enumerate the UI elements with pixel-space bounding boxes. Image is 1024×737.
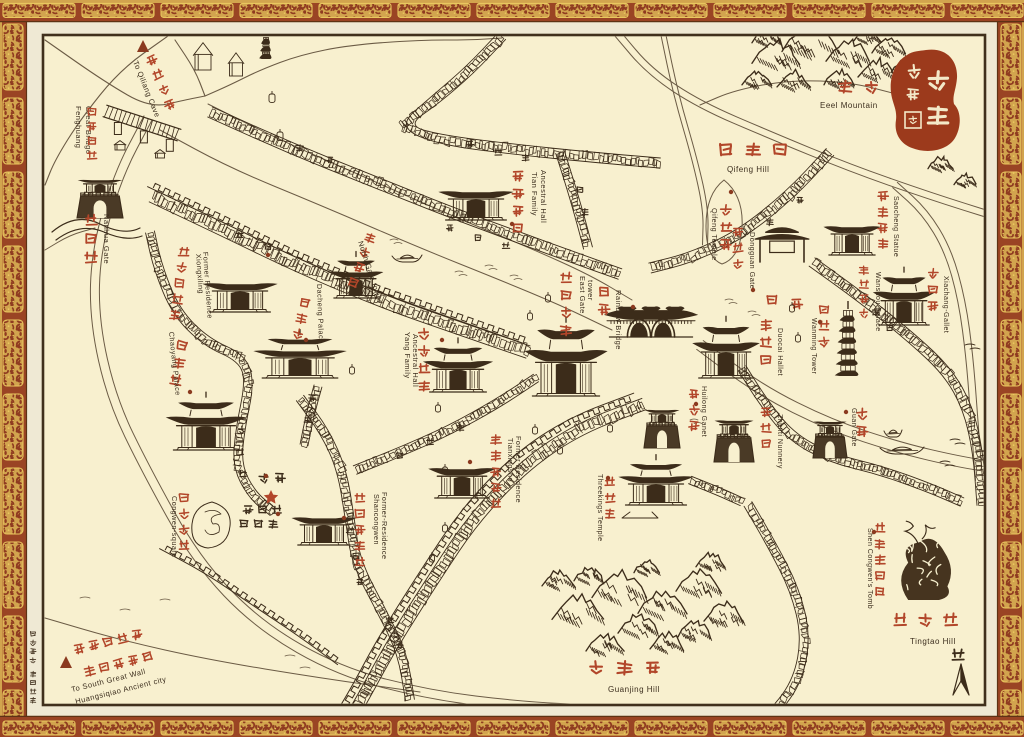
svg-text:Eeel Mountain: Eeel Mountain: [820, 101, 878, 110]
svg-text:Ancestral Hall: Ancestral Hall: [411, 334, 420, 387]
svg-text:Nanhua Gate: Nanhua Gate: [102, 214, 111, 264]
svg-text:Rainbow Bridge: Rainbow Bridge: [614, 290, 623, 350]
svg-text:Wanming Tower: Wanming Tower: [810, 318, 817, 374]
svg-text:Qifeng Hill: Qifeng Hill: [727, 165, 769, 174]
svg-text:Dongguan Gate: Dongguan Gate: [748, 232, 757, 289]
svg-text:Former Residence: Former Residence: [514, 436, 523, 503]
svg-text:Ancestral Hall: Ancestral Hall: [539, 170, 548, 223]
svg-text:Duocai Hallet: Duocai Hallet: [776, 328, 783, 376]
svg-text:Wanshou Palace: Wanshou Palace: [874, 272, 881, 332]
svg-text:Tingtao Hill: Tingtao Hill: [910, 637, 956, 646]
svg-text:Yang Family: Yang Family: [403, 332, 412, 379]
svg-text:Guan Gate: Guan Gate: [850, 408, 857, 447]
svg-text:Fenghuang: Fenghuang: [74, 106, 83, 148]
svg-text:Qifeng Temple: Qifeng Temple: [710, 208, 719, 261]
svg-text:Threekings Temple: Threekings Temple: [596, 474, 603, 542]
svg-text:Congwen-square: Congwen-square: [170, 496, 179, 558]
svg-text:Former-Residence: Former-Residence: [380, 492, 389, 560]
svg-text:East Gate: East Gate: [578, 276, 587, 314]
svg-text:Tianxingsho: Tianxingsho: [506, 438, 515, 482]
svg-text:Shen Congwen's Tomb: Shen Congwen's Tomb: [866, 528, 873, 609]
svg-text:Xiachang-Gallet: Xiachang-Gallet: [942, 276, 949, 333]
svg-text:Zhunti Nunnery: Zhunti Nunnery: [776, 414, 783, 469]
svg-text:Shancongwen: Shancongwen: [372, 494, 381, 545]
svg-text:tower: tower: [586, 280, 595, 301]
svg-text:Guanjing Hill: Guanjing Hill: [608, 685, 660, 694]
svg-text:Huilong Ganet: Huilong Ganet: [700, 386, 707, 437]
svg-text:Saocheng Statue: Saocheng Statue: [892, 196, 899, 257]
svg-text:Tian Family: Tian Family: [530, 172, 539, 216]
